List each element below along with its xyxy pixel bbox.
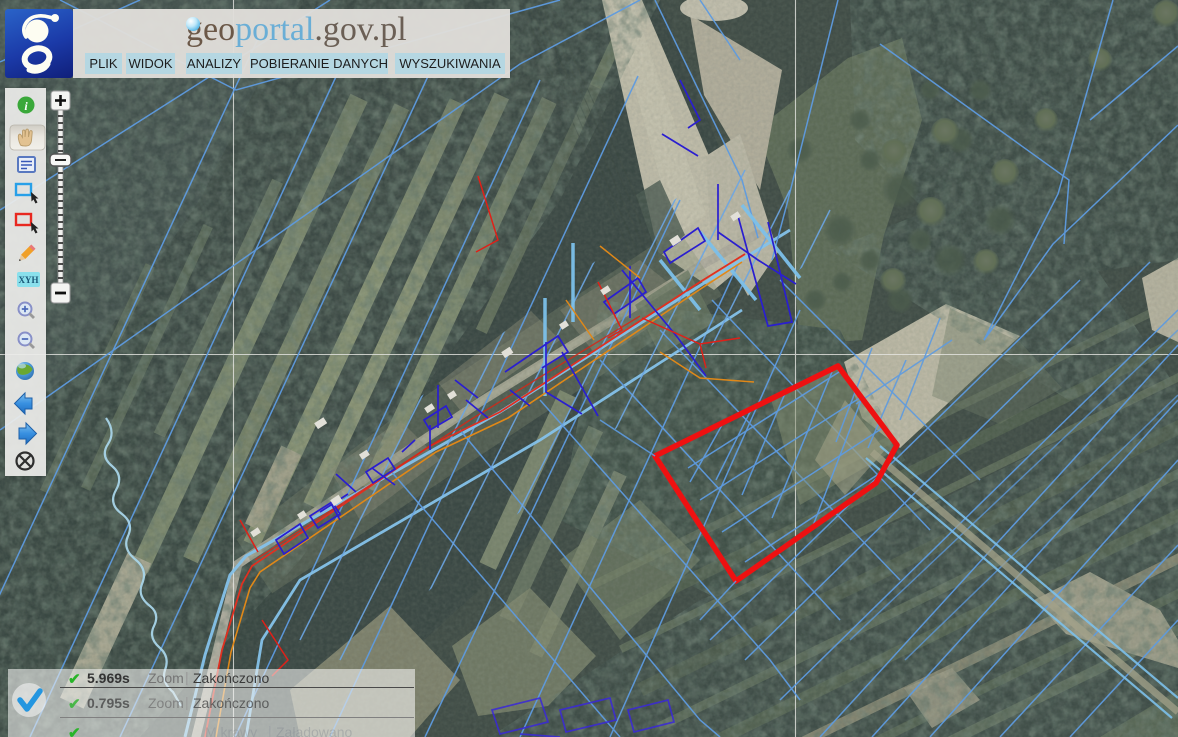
svg-text:XYH: XYH — [19, 275, 39, 285]
